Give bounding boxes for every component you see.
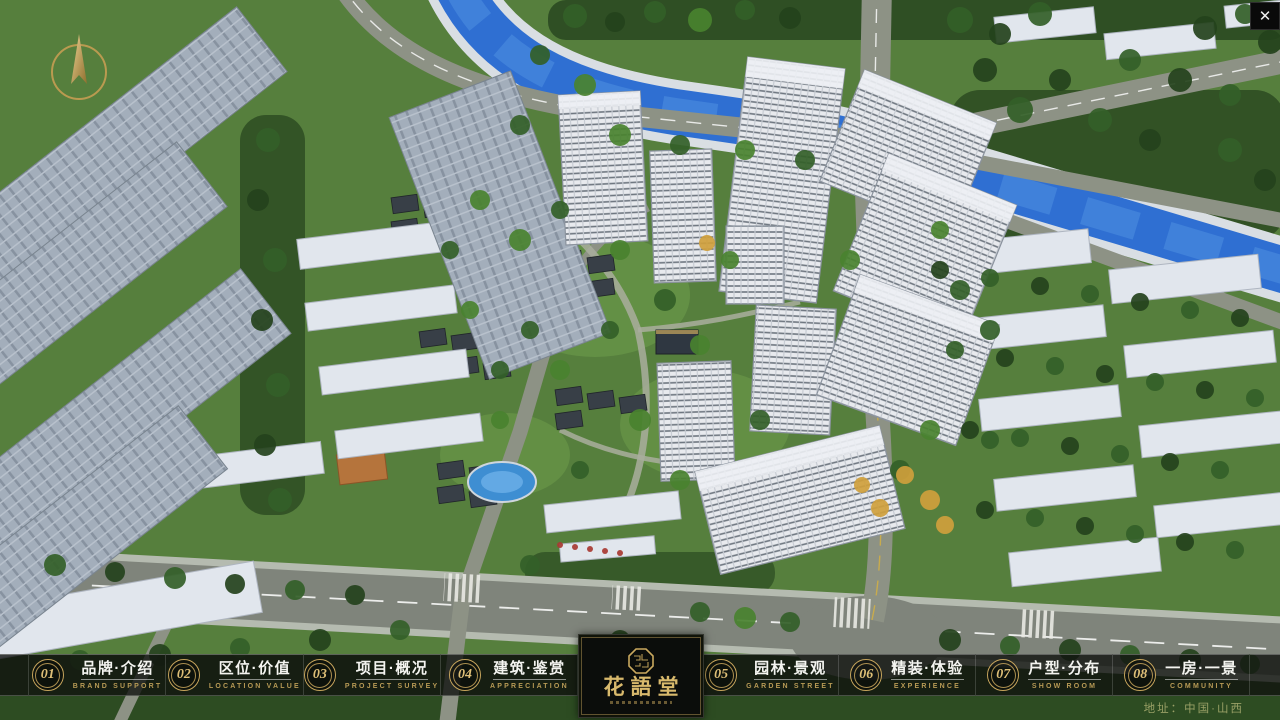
nav-item-floorplan-distribution[interactable]: 07 户型·分布SHOW ROOM [976,654,1113,696]
nav-item-location-value[interactable]: 02 区位·价值LOCATION VALUE [166,654,303,696]
nav-number-badge: 04 [449,659,481,691]
nav-item-decoration-experience[interactable]: 06 精装·体验EXPERIENCE [839,654,976,696]
nav-number-badge: 01 [32,659,64,691]
navbar-right-cap [1249,654,1280,696]
nav-number: 05 [714,667,728,683]
nav-item-label: 区位·价值 [219,661,292,680]
nav-item-label: 项目·概况 [356,661,429,680]
nav-item-sublabel: BRAND SUPPORT [73,683,163,690]
close-button[interactable]: ✕ [1250,2,1280,30]
nav-item-sublabel: EXPERIENCE [894,683,961,690]
nav-item-one-room-one-view[interactable]: 08 一房·一景COMMUNITY [1113,654,1249,696]
navbar-left-cap [0,654,29,696]
nav-group-left: 01 品牌·介绍BRAND SUPPORT 02 区位·价值LOCATION V… [29,654,578,696]
nav-item-label: 一房·一景 [1165,661,1238,680]
nav-item-garden-landscape[interactable]: 05 园林·景观GARDEN STREET [702,654,839,696]
logo-title: 花語堂 [598,677,685,698]
nav-number-badge: 03 [304,659,336,691]
nav-number-badge: 08 [1124,659,1156,691]
nav-number: 08 [1133,667,1147,683]
nav-item-sublabel: GARDEN STREET [746,683,835,690]
nav-item-sublabel: APPRECIATION [490,683,569,690]
nav-number-badge: 06 [850,659,882,691]
nav-item-sublabel: SHOW ROOM [1032,683,1097,690]
close-icon: ✕ [1259,9,1272,24]
nav-number: 03 [313,667,327,683]
nav-number-badge: 07 [987,659,1019,691]
address-label: 地址：中国·山西 [1144,700,1244,716]
nav-item-label: 品牌·介绍 [81,661,154,680]
seal-emblem-icon [628,648,654,674]
nav-item-brand-intro[interactable]: 01 品牌·介绍BRAND SUPPORT [29,654,166,696]
masterplan-aerial-render[interactable] [0,0,1280,720]
nav-item-label: 建筑·鉴赏 [493,661,566,680]
presentation-viewport: ✕ 01 品牌·介绍BRAND SUPPORT 02 区位·价值LOCATION… [0,0,1280,720]
nav-item-sublabel: LOCATION VALUE [209,683,301,690]
nav-number-badge: 02 [168,659,200,691]
logo-tagline [610,701,672,704]
nav-item-sublabel: PROJECT SURVEY [345,683,439,690]
project-logo-panel[interactable]: 花語堂 [578,634,704,718]
nav-item-sublabel: COMMUNITY [1170,683,1233,690]
nav-item-label: 园林·景观 [754,661,827,680]
nav-item-project-survey[interactable]: 03 项目·概况PROJECT SURVEY [304,654,441,696]
nav-item-architecture[interactable]: 04 建筑·鉴赏APPRECIATION [441,654,578,696]
nav-number: 06 [859,667,873,683]
nav-number: 01 [41,667,55,683]
nav-group-right: 05 园林·景观GARDEN STREET 06 精装·体验EXPERIENCE… [702,654,1249,696]
nav-number: 02 [177,667,191,683]
nav-item-label: 户型·分布 [1028,661,1101,680]
nav-number: 07 [996,667,1010,683]
nav-number: 04 [458,667,472,683]
nav-item-label: 精装·体验 [891,661,964,680]
nav-number-badge: 05 [705,659,737,691]
